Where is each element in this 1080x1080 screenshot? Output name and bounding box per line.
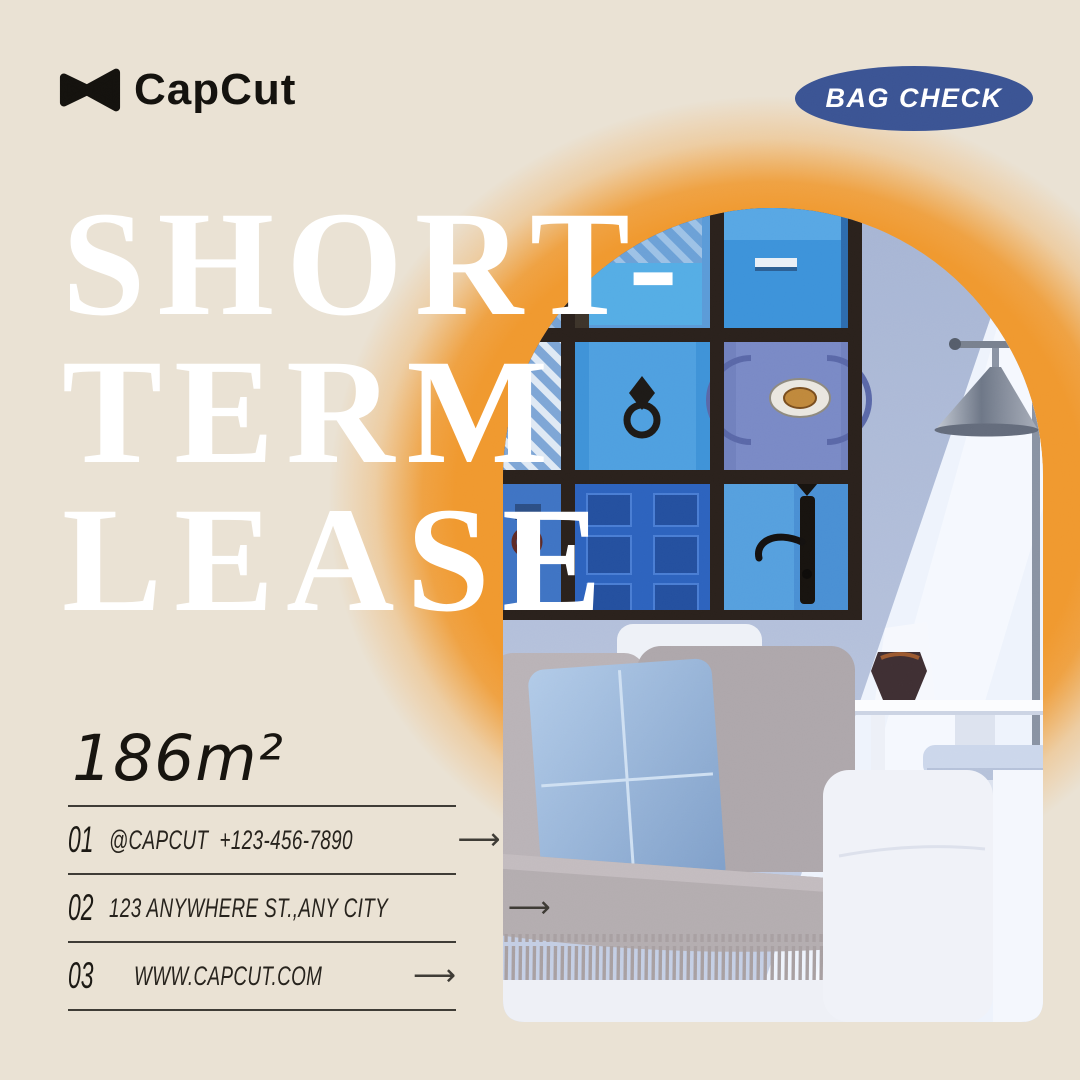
contact-handle-phone: @CAPCUT +123-456-7890 xyxy=(109,825,353,856)
row-number: 01 xyxy=(68,819,94,861)
divider-line xyxy=(68,1009,456,1011)
bag-check-badge[interactable]: BAG CHECK xyxy=(795,66,1033,131)
poster-canvas: CapCut BAG CHECK xyxy=(0,0,1080,1080)
capcut-bowtie-icon xyxy=(58,64,122,116)
headline-line-3: LEASE xyxy=(62,486,690,634)
area-label: 186m² xyxy=(72,722,284,795)
arrow-right-icon[interactable]: ⟶ xyxy=(458,825,501,855)
arrow-right-icon[interactable]: ⟶ xyxy=(508,893,551,923)
headline-line-1: SHORT- xyxy=(62,190,690,338)
contact-website: WWW.CAPCUT.COM xyxy=(134,961,322,992)
arrow-right-icon[interactable]: ⟶ xyxy=(413,961,456,991)
contact-row-1[interactable]: 01 @CAPCUT +123-456-7890 ⟶ xyxy=(68,807,456,873)
contact-address: 123 ANYWHERE ST.,ANY CITY xyxy=(109,893,388,924)
contact-row-2[interactable]: 02 123 ANYWHERE ST.,ANY CITY ⟶ xyxy=(68,875,456,941)
brand-name: CapCut xyxy=(134,65,296,115)
capcut-logo: CapCut xyxy=(58,64,296,116)
headline: SHORT- TERM LEASE xyxy=(62,190,690,634)
row-number: 02 xyxy=(68,887,94,929)
headline-line-2: TERM xyxy=(62,338,690,486)
row-number: 03 xyxy=(68,955,109,997)
contact-row-3[interactable]: 03 WWW.CAPCUT.COM ⟶ xyxy=(68,943,456,1009)
badge-label: BAG CHECK xyxy=(825,83,1002,114)
